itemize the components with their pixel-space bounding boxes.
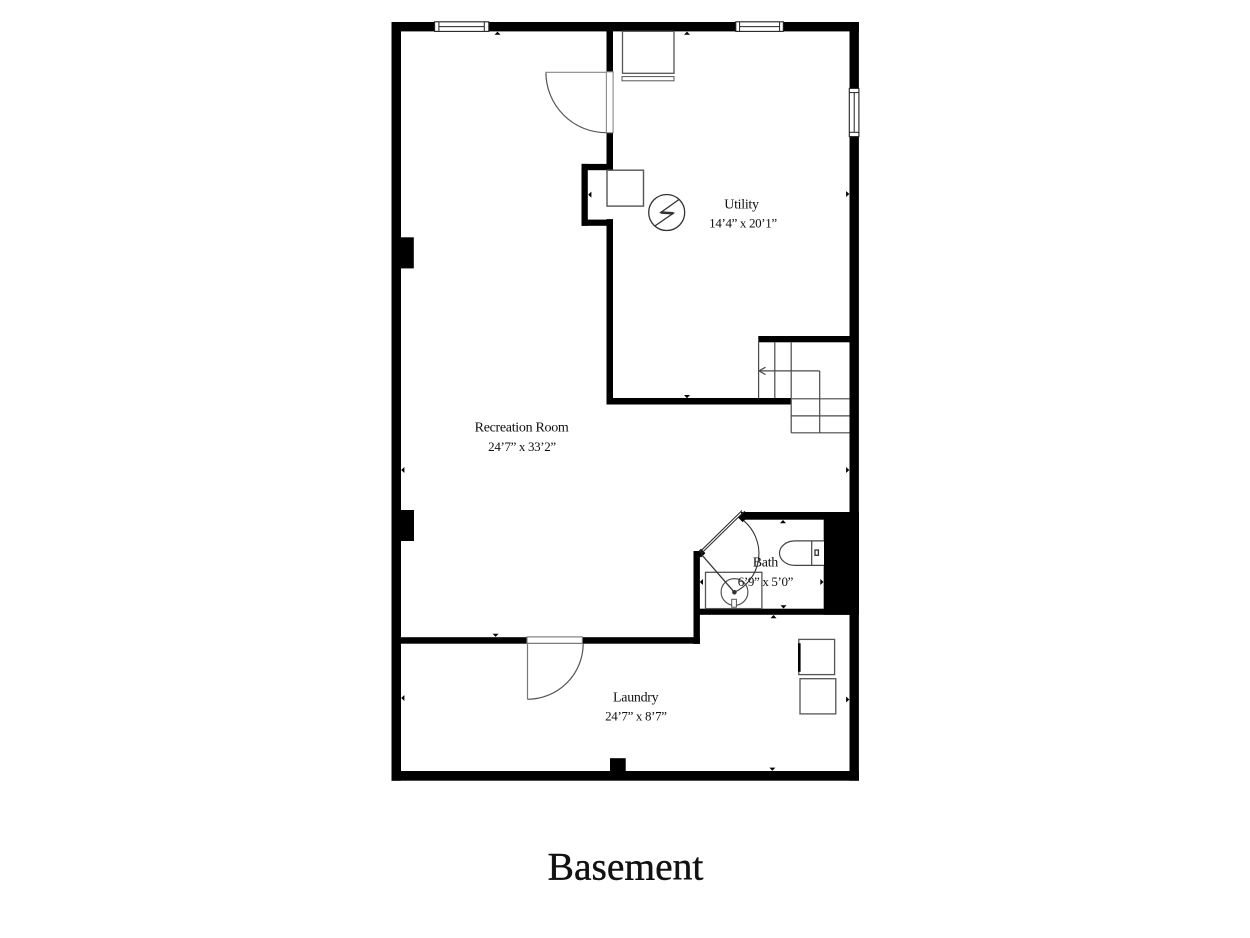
svg-text:24’7” x 8’7”: 24’7” x 8’7” (605, 709, 667, 724)
svg-text:6’9” x 5’0”: 6’9” x 5’0” (738, 574, 794, 589)
svg-text:14’4” x 20’1”: 14’4” x 20’1” (709, 216, 777, 231)
svg-text:Bath: Bath (753, 556, 779, 571)
svg-text:Utility: Utility (724, 198, 759, 213)
svg-text:Laundry: Laundry (613, 690, 659, 705)
svg-text:Basement: Basement (548, 844, 704, 888)
svg-text:Recreation Room: Recreation Room (475, 421, 569, 436)
svg-text:24’7” x 33’2”: 24’7” x 33’2” (488, 439, 556, 454)
